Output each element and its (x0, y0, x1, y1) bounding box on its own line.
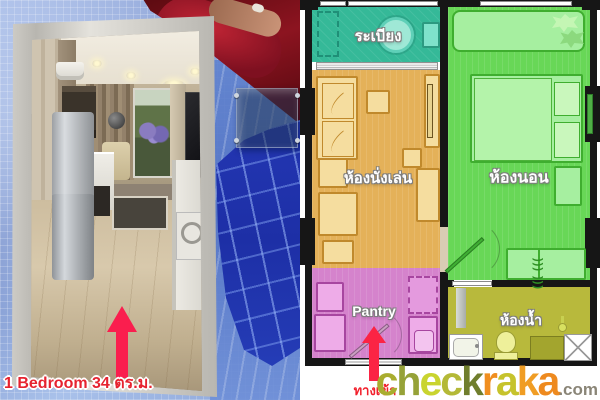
label-pantry: Pantry (352, 303, 396, 319)
service-shaft (564, 334, 592, 361)
photo-caption: 1 Bedroom 34 ตร.ม. (4, 371, 153, 396)
window-marker (320, 1, 346, 6)
bathroom-door-threshold (452, 281, 492, 286)
label-bedroom: ห้องนอน (489, 166, 548, 191)
watermark-letter: a (496, 358, 517, 400)
refrigerator (52, 112, 94, 280)
wall-inner-vertical-lower (440, 272, 448, 358)
direction-arrow-icon (107, 306, 137, 332)
watermark-letter: h (396, 358, 419, 400)
entrance-arrow-icon (362, 326, 386, 343)
wall-left (305, 0, 312, 366)
bathroom-door (456, 288, 466, 328)
watermark-letter: r (482, 358, 496, 400)
column (300, 0, 318, 10)
toilet-bowl (496, 331, 516, 353)
watermark-letter: a (538, 358, 559, 400)
window-marker (348, 1, 438, 6)
ceiling-light (190, 68, 200, 75)
bed (470, 74, 583, 163)
pouf (402, 148, 422, 168)
watermark-letter: c (376, 358, 397, 400)
floor-lamp (108, 112, 125, 129)
sofa-plan (316, 76, 358, 160)
watermark-letter: c (440, 358, 461, 400)
sink-faucet (475, 344, 479, 348)
plaque-pin (234, 138, 239, 143)
label-bathroom: ห้องน้ำ (500, 310, 542, 332)
bedroom-side-window (587, 94, 593, 134)
watermark-letter: k (461, 358, 482, 400)
watermark-letter: k (517, 358, 538, 400)
column (300, 218, 315, 265)
pantry-cabinet (314, 314, 346, 352)
glass-plaque (236, 88, 298, 148)
mattress (474, 78, 552, 161)
ceiling-light (126, 72, 136, 79)
watermark-suffix: .com (558, 380, 598, 399)
balcony-sliding-door (316, 62, 438, 70)
sofa-cushion (322, 121, 354, 157)
bedroom-door-arc (446, 222, 500, 276)
wall-inner-vertical (440, 7, 448, 227)
pantry-overhead-cabinet (408, 276, 438, 314)
apartment-photo: 1 Bedroom 34 ตร.ม. (0, 0, 300, 400)
wall-right (590, 0, 597, 366)
shampoo-bottle (558, 323, 567, 332)
sofa-cushion (322, 83, 354, 119)
desk (416, 168, 440, 222)
column (300, 88, 315, 135)
screenshot-canvas: 1 Bedroom 34 ตร.ม. (0, 0, 600, 400)
pillow-crumpled (560, 30, 584, 48)
label-living-room: ห้องนั่งเล่น (344, 166, 412, 190)
washing-machine-door (181, 222, 203, 244)
balcony-ac-unit (317, 11, 339, 57)
plaque-pin (234, 93, 239, 98)
air-conditioner (56, 62, 84, 80)
balcony-bench (422, 22, 440, 48)
bathroom-sink (449, 334, 483, 360)
pillow (554, 122, 580, 158)
leaf-pattern (326, 92, 350, 114)
checkraka-watermark: checkraka.com (376, 361, 598, 400)
leaf-pattern (326, 130, 350, 152)
hanger-icons: ))) ))) (532, 258, 544, 290)
pantry-cabinet (316, 282, 344, 312)
lounge-chair (318, 192, 358, 236)
side-table (366, 90, 390, 114)
wardrobe: ))) ))) (506, 248, 586, 280)
ceiling-light (92, 60, 102, 67)
label-balcony: ระเบียง (355, 24, 402, 48)
pouf (322, 240, 354, 264)
dining-chair (94, 186, 110, 216)
pillow (554, 82, 580, 116)
nightstand (554, 166, 582, 206)
flower-planter (138, 122, 170, 144)
pillow-crumpled (552, 14, 578, 32)
column (585, 218, 600, 268)
window-marker (480, 1, 572, 6)
bathroom-vanity (530, 336, 564, 360)
watermark-letter: e (419, 358, 440, 400)
tv-plan (427, 84, 433, 138)
rug (112, 196, 168, 230)
bed-bench (452, 10, 585, 52)
pantry-sink (414, 330, 434, 352)
column (582, 0, 600, 10)
